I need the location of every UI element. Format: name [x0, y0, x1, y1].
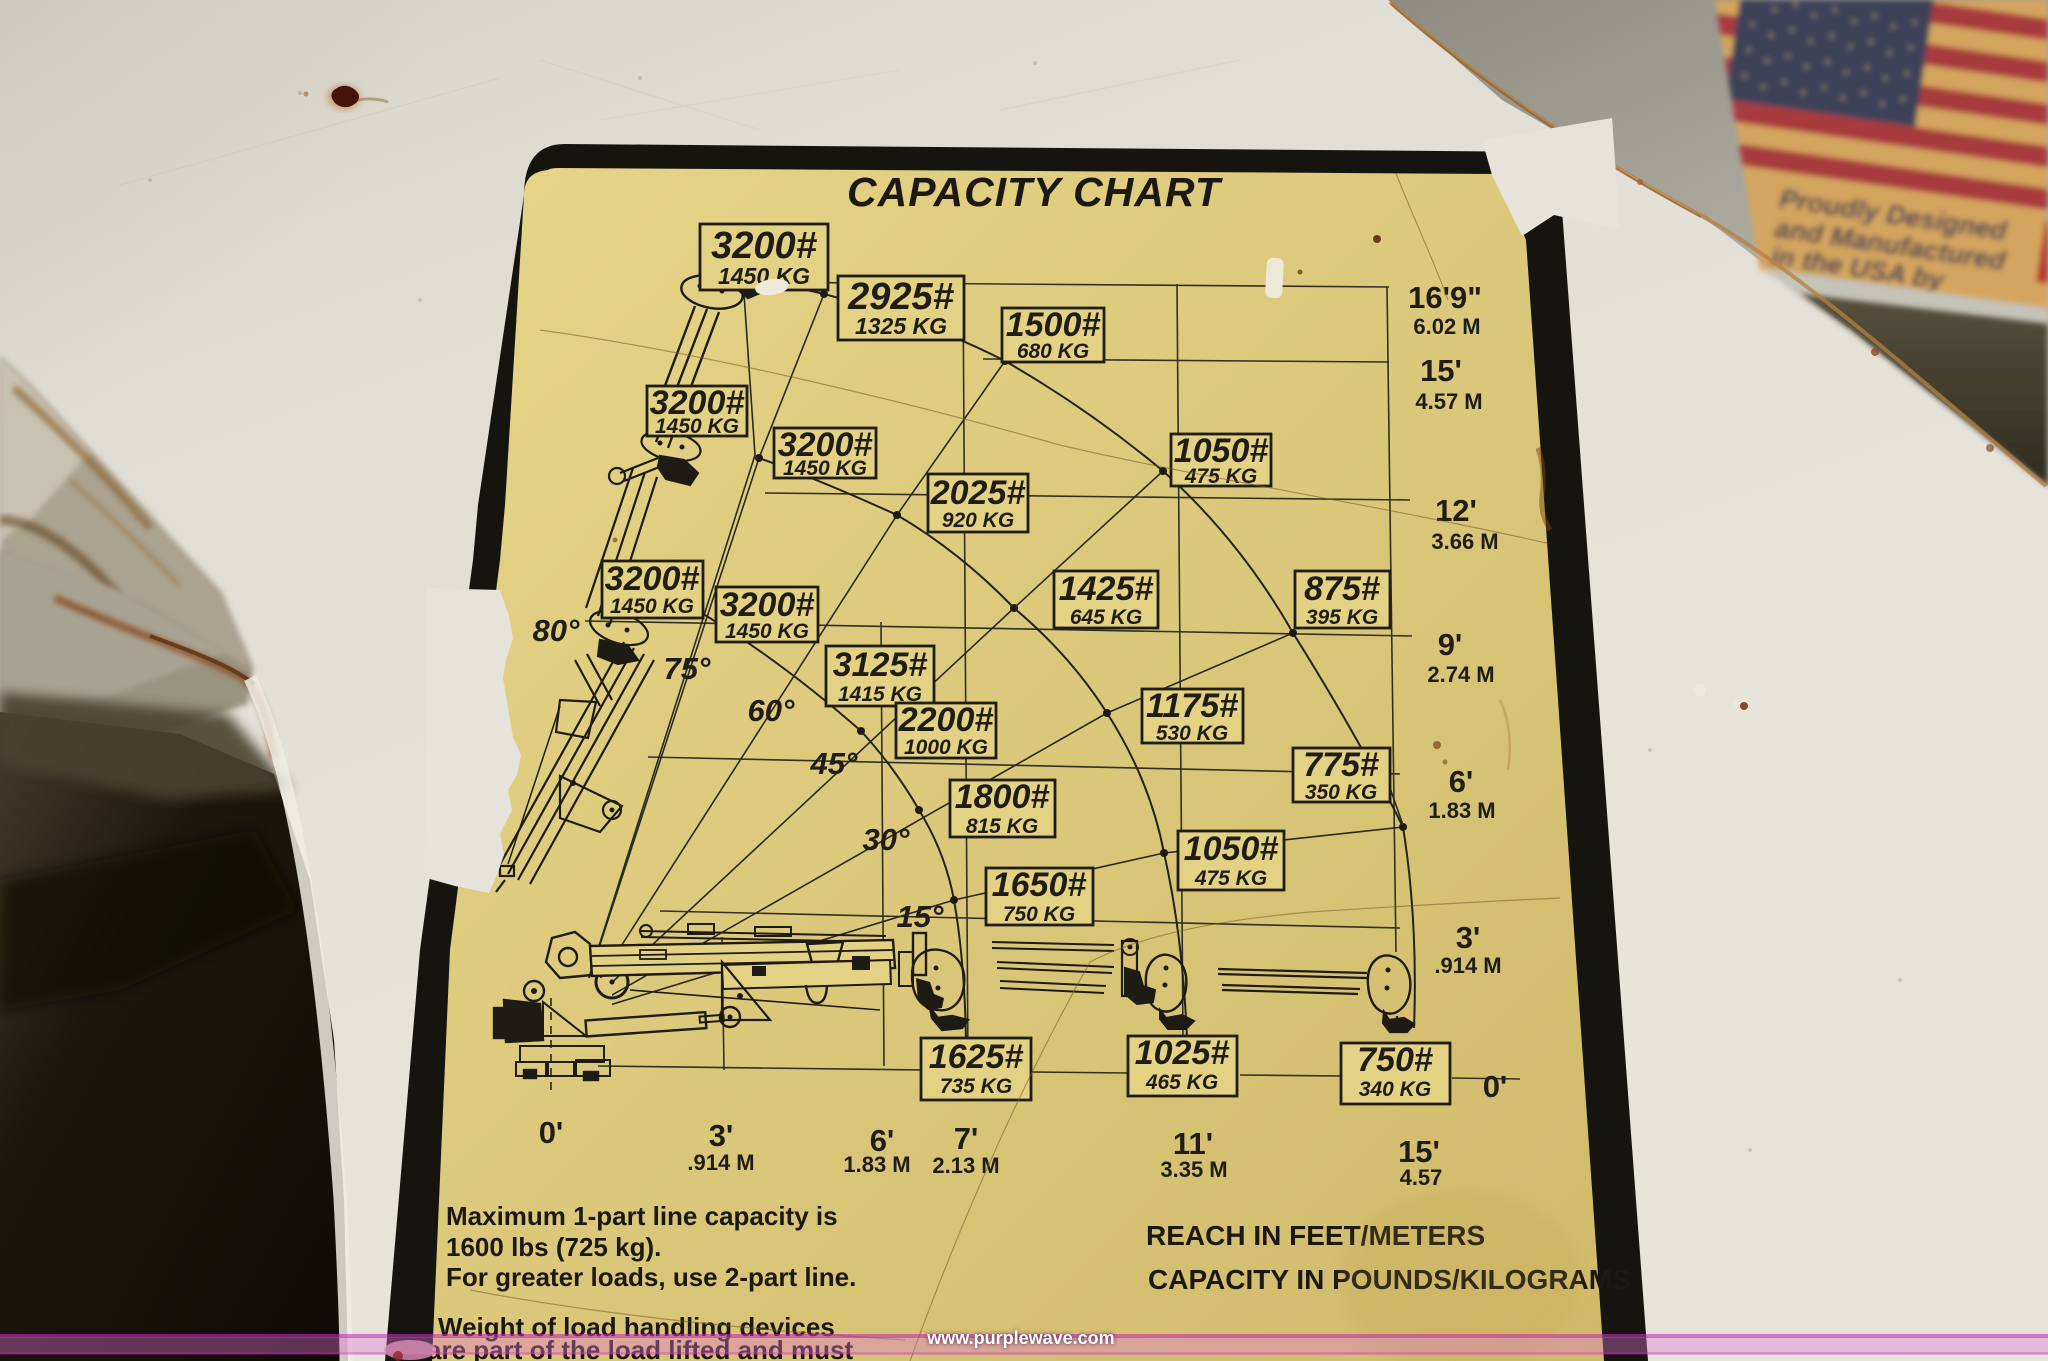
- svg-text:1.83 M: 1.83 M: [843, 1152, 910, 1177]
- svg-text:4.57: 4.57: [1400, 1165, 1443, 1190]
- svg-text:775#: 775#: [1303, 746, 1379, 784]
- svg-text:1450 KG: 1450 KG: [725, 620, 809, 643]
- svg-text:7': 7': [954, 1121, 979, 1156]
- svg-text:3200#: 3200#: [720, 586, 815, 624]
- svg-text:4.57 M: 4.57 M: [1415, 389, 1482, 414]
- svg-text:1500#: 1500#: [1006, 306, 1101, 344]
- svg-text:6': 6': [1449, 764, 1474, 799]
- svg-text:1000 KG: 1000 KG: [904, 736, 988, 759]
- svg-text:340 KG: 340 KG: [1359, 1078, 1431, 1101]
- svg-text:1625#: 1625#: [929, 1038, 1024, 1076]
- svg-text:2.74 M: 2.74 M: [1427, 662, 1494, 687]
- svg-text:1415 KG: 1415 KG: [838, 683, 922, 706]
- svg-text:645 KG: 645 KG: [1070, 606, 1142, 629]
- svg-text:680 KG: 680 KG: [1017, 340, 1089, 363]
- svg-text:12': 12': [1435, 493, 1477, 528]
- svg-text:16'9": 16'9": [1408, 280, 1482, 315]
- svg-text:15°: 15°: [897, 899, 944, 934]
- svg-text:1800#: 1800#: [955, 778, 1050, 816]
- svg-text:1600 lbs (725 kg).: 1600 lbs (725 kg).: [446, 1232, 661, 1262]
- svg-text:45°: 45°: [810, 746, 858, 781]
- svg-text:735 KG: 735 KG: [940, 1075, 1012, 1098]
- svg-text:15': 15': [1420, 353, 1462, 388]
- svg-text:30°: 30°: [863, 822, 910, 857]
- svg-text:1050#: 1050#: [1184, 830, 1279, 868]
- svg-text:3200#: 3200#: [605, 560, 700, 598]
- svg-text:0': 0': [539, 1115, 564, 1150]
- svg-text:1450 KG: 1450 KG: [783, 457, 867, 480]
- svg-text:395 KG: 395 KG: [1306, 606, 1378, 629]
- svg-text:1175#: 1175#: [1146, 687, 1238, 725]
- svg-text:1425#: 1425#: [1059, 570, 1154, 608]
- svg-text:11': 11': [1173, 1126, 1213, 1161]
- svg-text:920 KG: 920 KG: [942, 509, 1014, 532]
- svg-text:CAPACITY CHART: CAPACITY CHART: [847, 169, 1223, 215]
- svg-text:6.02 M: 6.02 M: [1413, 314, 1480, 339]
- svg-text:2.13 M: 2.13 M: [932, 1153, 999, 1178]
- svg-text:3': 3': [709, 1118, 734, 1153]
- svg-text:1.83 M: 1.83 M: [1428, 798, 1495, 823]
- svg-text:2025#: 2025#: [930, 474, 1026, 512]
- svg-text:475 KG: 475 KG: [1194, 867, 1267, 890]
- svg-text:815 KG: 815 KG: [966, 815, 1038, 838]
- svg-text:350 KG: 350 KG: [1305, 781, 1377, 804]
- svg-text:15': 15': [1398, 1134, 1440, 1169]
- svg-text:For greater loads, use 2-part: For greater loads, use 2-part line.: [446, 1262, 856, 1292]
- svg-text:60°: 60°: [748, 693, 795, 728]
- svg-text:1450 KG: 1450 KG: [610, 595, 694, 618]
- svg-text:3200#: 3200#: [711, 225, 818, 267]
- svg-text:465 KG: 465 KG: [1145, 1071, 1218, 1094]
- svg-text:1450 KG: 1450 KG: [655, 415, 739, 438]
- svg-text:3': 3': [1456, 920, 1481, 955]
- svg-text:1650#: 1650#: [992, 866, 1087, 904]
- svg-text:80°: 80°: [533, 613, 580, 648]
- svg-text:3125#: 3125#: [833, 646, 928, 684]
- svg-text:475 KG: 475 KG: [1184, 465, 1257, 488]
- svg-text:2200#: 2200#: [898, 701, 994, 739]
- svg-text:0': 0': [1483, 1069, 1508, 1104]
- svg-text:750 KG: 750 KG: [1003, 903, 1075, 926]
- svg-text:.914 M: .914 M: [687, 1150, 754, 1175]
- svg-text:75°: 75°: [664, 651, 711, 686]
- svg-text:www.purplewave.com: www.purplewave.com: [926, 1328, 1114, 1348]
- svg-text:.914 M: .914 M: [1434, 953, 1501, 978]
- svg-text:3.66 M: 3.66 M: [1431, 529, 1498, 554]
- svg-text:2925#: 2925#: [847, 276, 955, 318]
- svg-text:1025#: 1025#: [1135, 1034, 1230, 1072]
- svg-text:875#: 875#: [1304, 570, 1380, 608]
- svg-text:3.35 M: 3.35 M: [1160, 1157, 1227, 1182]
- svg-text:Maximum 1-part line capacity i: Maximum 1-part line capacity is: [446, 1201, 838, 1231]
- svg-text:9': 9': [1438, 627, 1463, 662]
- svg-text:1325 KG: 1325 KG: [855, 313, 947, 339]
- svg-text:530 KG: 530 KG: [1156, 722, 1228, 745]
- svg-text:750#: 750#: [1357, 1041, 1433, 1079]
